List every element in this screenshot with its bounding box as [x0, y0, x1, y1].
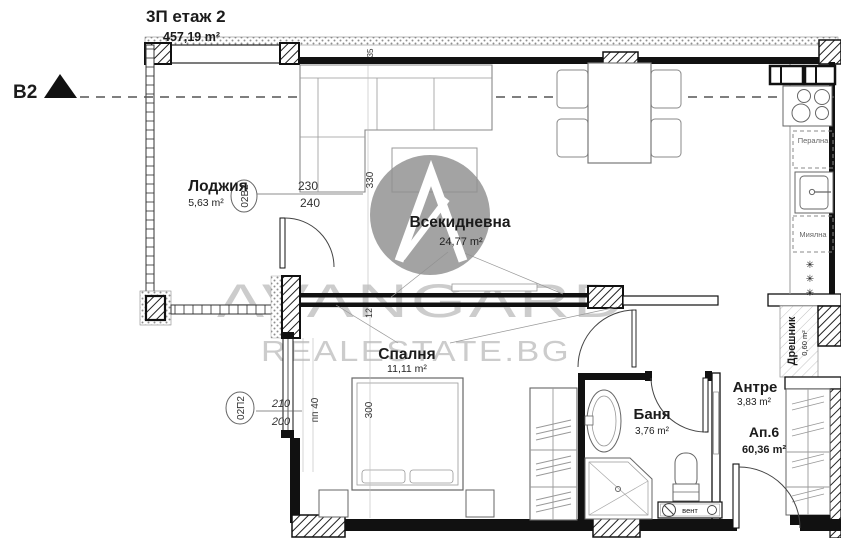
snowflake-symbol: ✳ [806, 274, 814, 285]
top-insulation-band [145, 37, 838, 45]
section-marker-label: B2 [13, 82, 37, 103]
vent-label: вент [682, 506, 698, 515]
dining-table [588, 63, 651, 163]
dim-330: 330 [365, 171, 376, 188]
room-area-bedroom: 11,11 m² [387, 363, 427, 375]
floor-title: 3П етаж 2 [146, 7, 226, 26]
bath-left-wall [578, 373, 585, 523]
kitchen-upper-cabinets [770, 66, 835, 84]
dim-230: 230 [298, 179, 318, 193]
top-wall-hatch-block [603, 52, 638, 64]
floorplan-page: AVANGARD REALESTATE.BG [0, 0, 841, 538]
room-area-living: 24,77 m² [439, 236, 483, 248]
kitchen: ✳ ✳ ✳ [770, 64, 835, 299]
closet-top-wall [768, 294, 841, 306]
column-top-right [819, 40, 841, 64]
loggia-door-swing [285, 218, 334, 267]
loggia-door-leaf [280, 218, 285, 268]
toilet [673, 453, 699, 501]
snowflake-symbol: ✳ [806, 260, 814, 271]
room-area-loggia: 5,63 m² [188, 197, 224, 209]
vent-unit: вент [658, 502, 722, 518]
dishwasher-label: Миялна [799, 230, 827, 239]
tag-bedroom-window: 02П2 [236, 396, 247, 420]
bath-sink-faucet [585, 416, 593, 425]
bottom-wall-hatch-left [292, 515, 345, 537]
pillow [362, 470, 405, 483]
living-shelf [452, 284, 537, 291]
bedroom-window-cap-bottom [281, 430, 294, 438]
dim-12: 12 [364, 308, 374, 318]
room-name-loggia: Лоджия [188, 178, 248, 195]
chair [651, 119, 681, 157]
dining-set [557, 63, 681, 163]
bath-door-swing [651, 378, 705, 432]
room-name-bedroom: Спалня [378, 346, 435, 363]
dim-240: 240 [300, 196, 320, 210]
dim-300: 300 [364, 401, 375, 418]
room-name-closet: Дрешник [786, 316, 798, 365]
snowflake-symbol: ✳ [806, 288, 814, 299]
bedroom-wardrobe [530, 388, 577, 520]
dim-parapet: пп 40 [310, 397, 321, 422]
nightstand-left [319, 490, 348, 517]
room-area-bath: 3,76 m² [635, 426, 670, 437]
middle-wall-column [588, 286, 623, 308]
right-wall-hatch-lower [830, 389, 841, 538]
bedroom-wall-insulation [271, 276, 282, 338]
closet-bottom-wall [785, 377, 841, 389]
loggia-corner-column [146, 296, 165, 320]
loggia-parapet-railing [171, 305, 277, 314]
apartment-total-area: 60,36 m² [742, 444, 786, 456]
room-name-bath: Баня [634, 406, 671, 423]
bedroom-left-wall-lower [290, 438, 300, 523]
middle-wall-lower-line [300, 303, 588, 308]
kitchen-sink [795, 172, 833, 213]
dim-210: 210 [271, 398, 291, 410]
room-name-hall: Антре [733, 379, 778, 396]
room-area-hall: 3,83 m² [737, 397, 772, 408]
section-marker-icon [44, 74, 77, 98]
middle-wall-upper-line [300, 293, 588, 298]
chair [557, 70, 588, 108]
chair [651, 70, 681, 108]
bath-top-wall [578, 373, 651, 380]
corridor-wall [623, 296, 718, 305]
top-wall [298, 57, 835, 64]
bed [352, 378, 463, 490]
shower [585, 458, 652, 519]
bottom-wall-2 [640, 519, 737, 531]
hall-wardrobe [786, 389, 830, 525]
bath-door-leaf [703, 378, 708, 432]
column-loggia-living [280, 43, 299, 64]
bottom-wall-1 [345, 519, 593, 531]
stove [783, 86, 832, 126]
room-area-closet: 0,60 m² [800, 330, 809, 356]
bedroom-wall-column [282, 276, 300, 338]
floorplan-drawing: AVANGARD REALESTATE.BG [0, 0, 841, 538]
washer-label: Перална [798, 136, 829, 145]
bedroom-door-leaf [632, 310, 636, 367]
loggia-left-glazing [146, 45, 154, 292]
floor-area: 457,19 m² [163, 30, 220, 44]
entry-door-leaf [733, 464, 739, 528]
pillow [410, 470, 453, 483]
dim-200: 200 [271, 416, 291, 428]
nightstand-right [466, 490, 494, 517]
room-name-living: Всекидневна [409, 214, 510, 231]
hall-wardrobe-base [790, 515, 830, 525]
chair [557, 119, 588, 157]
right-wall-hatch-upper [818, 306, 841, 346]
bedroom-window-cap-top [281, 332, 294, 339]
dim-35: 35 [366, 48, 375, 57]
apartment-number: Ап.6 [749, 424, 779, 440]
